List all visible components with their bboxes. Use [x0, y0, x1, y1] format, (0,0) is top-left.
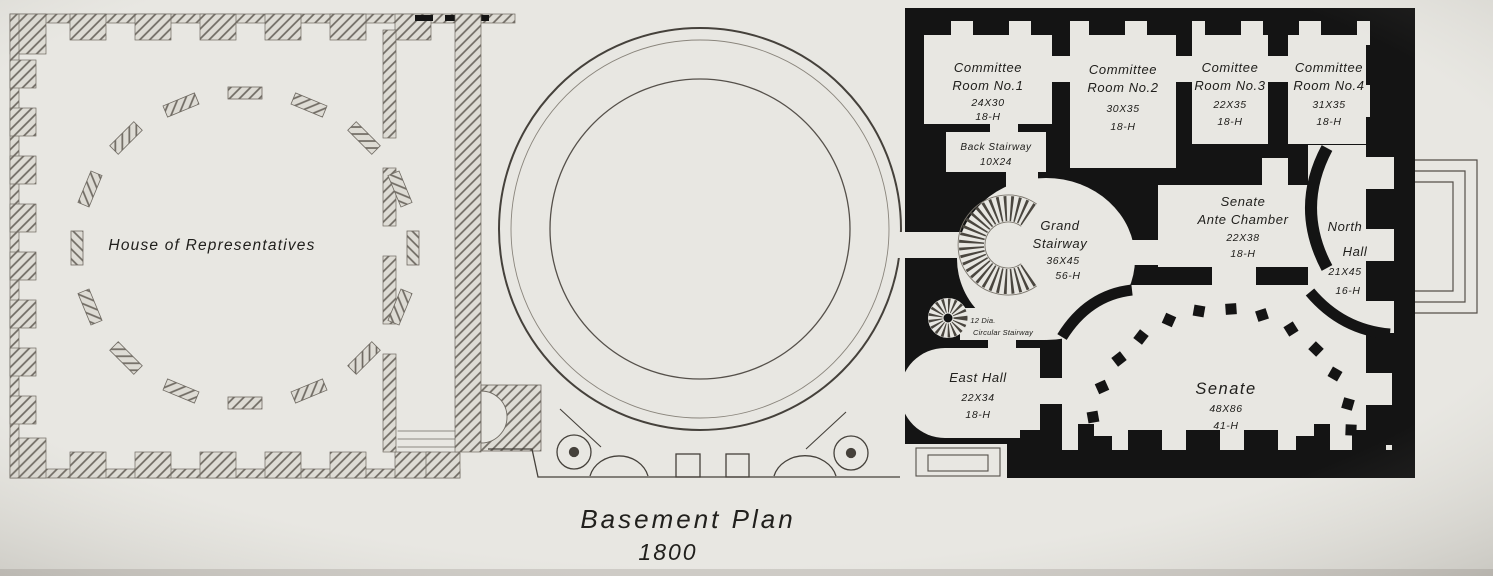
committee-room-2-name: Room No.2 — [1087, 80, 1158, 95]
ante-chamber-height: 18-H — [1230, 248, 1255, 260]
back-stairway-size: 10X24 — [980, 157, 1012, 168]
north-hall-height: 16-H — [1335, 285, 1360, 297]
senate-wing-top-wall — [905, 8, 1415, 35]
scan-edge-strip — [0, 569, 1493, 576]
circular-stairway-label-1: 12 Dia. — [970, 316, 995, 325]
east-hall-label: East Hall — [949, 370, 1007, 385]
caption-year: 1800 — [638, 539, 697, 565]
committee-room-1-size: 24X30 — [970, 97, 1004, 109]
committee-room-4-size: 31X35 — [1312, 99, 1345, 111]
basement-plan-figure: House of Representatives — [0, 0, 1493, 576]
committee-room-4-height: 18-H — [1316, 116, 1341, 128]
senate-chamber-label: Senate — [1195, 380, 1256, 398]
east-hall-size: 22X34 — [960, 392, 994, 404]
committee-room-4-name: Room No.4 — [1293, 78, 1364, 93]
senate-chamber-height: 41-H — [1213, 420, 1238, 432]
committee-room-2-size: 30X35 — [1106, 103, 1139, 115]
caption-title: Basement Plan — [580, 504, 795, 534]
circular-stairway-label-2: Circular Stairway — [973, 328, 1034, 337]
ante-chamber-label-1: Senate — [1221, 194, 1266, 209]
grand-stairway-label-1: Grand — [1040, 218, 1079, 233]
grand-stairway-size: 36X45 — [1046, 255, 1079, 267]
committee-room-1-name: Room No.1 — [952, 78, 1023, 93]
north-hall-size: 21X45 — [1327, 266, 1361, 278]
back-stairway-label: Back Stairway — [960, 142, 1032, 153]
grand-stairway-height: 56-H — [1055, 270, 1080, 282]
ante-chamber-size: 22X38 — [1225, 232, 1259, 244]
committee-room-3-label: Comittee — [1202, 60, 1259, 75]
ante-chamber-label-2: Ante Chamber — [1196, 212, 1288, 227]
committee-room-2-label: Committee — [1089, 62, 1157, 77]
senate-wing: Committee Room No.1 24X30 18-H Committee… — [893, 8, 1477, 478]
north-hall-label-2: Hall — [1343, 244, 1368, 259]
senate-chamber-size: 48X86 — [1209, 403, 1242, 415]
committee-room-3-name: Room No.3 — [1194, 78, 1265, 93]
committee-room-4-label: Committee — [1295, 60, 1363, 75]
east-hall-height: 18-H — [965, 409, 990, 421]
house-of-representatives-label: House of Representatives — [108, 237, 315, 254]
committee-room-2-height: 18-H — [1110, 121, 1135, 133]
committee-room-3-height: 18-H — [1217, 116, 1242, 128]
north-hall-label-1: North — [1328, 219, 1363, 234]
committee-room-1-label: Committee — [954, 60, 1022, 75]
scanned-plan-page: House of Representatives — [0, 0, 1493, 576]
grand-stairway-label-2: Stairway — [1033, 236, 1089, 251]
committee-room-3-size: 22X35 — [1212, 99, 1246, 111]
committee-room-1-height: 18-H — [975, 111, 1000, 123]
